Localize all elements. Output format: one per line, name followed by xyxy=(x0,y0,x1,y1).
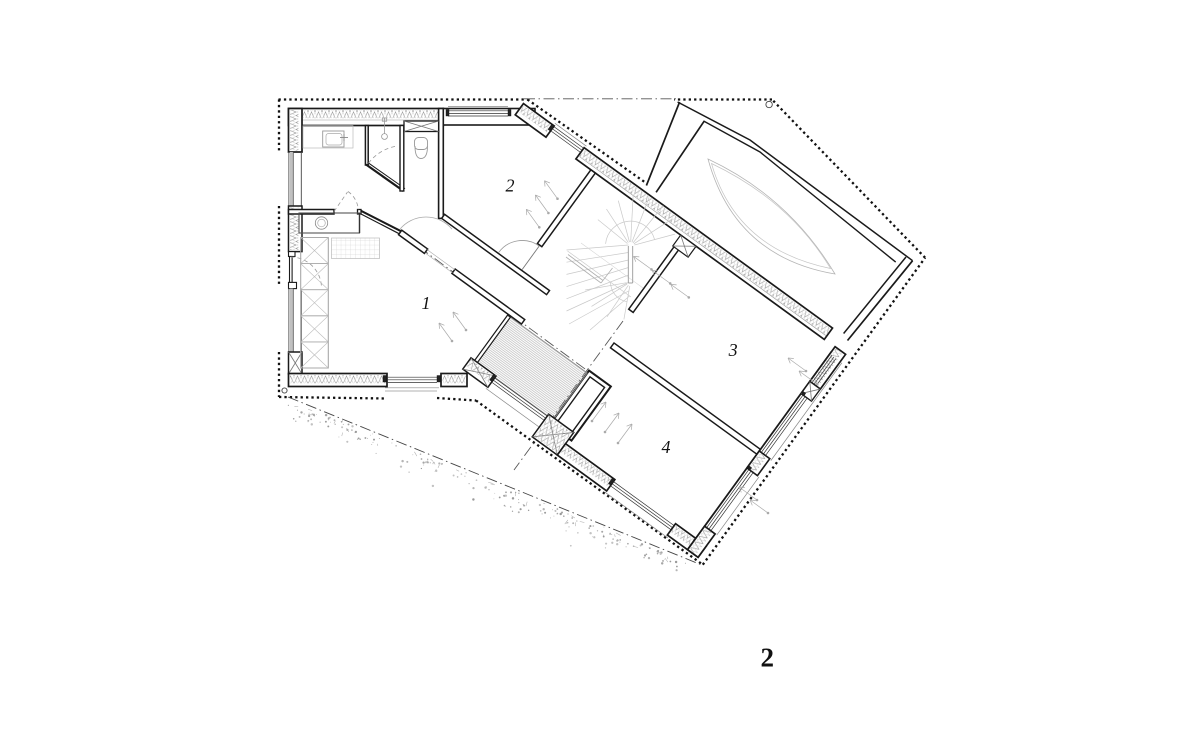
svg-text:1: 1 xyxy=(422,293,431,313)
svg-text:4: 4 xyxy=(662,437,671,457)
svg-text:3: 3 xyxy=(728,340,738,360)
svg-text:2: 2 xyxy=(506,176,515,196)
svg-text:2: 2 xyxy=(761,643,775,673)
